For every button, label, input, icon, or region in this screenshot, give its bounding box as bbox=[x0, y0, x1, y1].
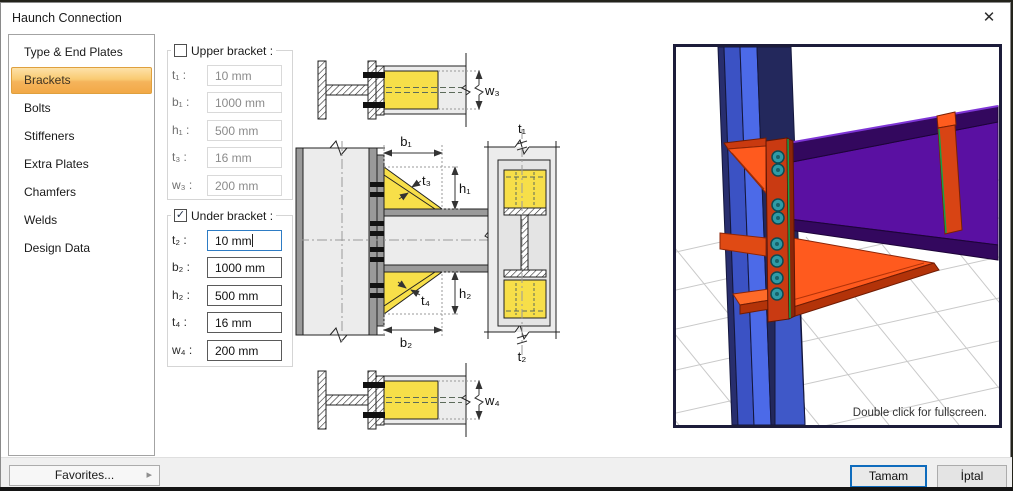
under-bracket-group: ✓ Under bracket : t₂ : b₂ : h₂ : t₄ : w₄… bbox=[167, 215, 293, 367]
screen: { "window": { "title": "Haunch Connectio… bbox=[0, 0, 1013, 491]
field-row-w4: w₄ : bbox=[168, 340, 292, 361]
field-row-t2: t₂ : bbox=[168, 230, 292, 251]
field-row-t4: t₄ : bbox=[168, 312, 292, 333]
field-row-b1: b₁ : bbox=[168, 92, 292, 113]
w3-label: w₃ : bbox=[172, 178, 206, 192]
t2-input[interactable] bbox=[207, 230, 282, 251]
t4-input[interactable] bbox=[207, 312, 282, 333]
haunch-connection-dialog: Haunch Connection ✕ Type & End Plates Br… bbox=[0, 2, 1011, 487]
titlebar: Haunch Connection ✕ bbox=[1, 3, 1010, 33]
diagram-top-view: w₃ bbox=[318, 53, 500, 127]
cancel-button[interactable]: İptal bbox=[937, 465, 1007, 488]
sidebar-item-stiffeners[interactable]: Stiffeners bbox=[11, 123, 152, 150]
b1-label: b₁ : bbox=[172, 95, 206, 109]
ok-button[interactable]: Tamam bbox=[850, 465, 927, 488]
t1-input[interactable] bbox=[207, 65, 282, 86]
favorites-button[interactable]: Favorites... ▸ bbox=[9, 465, 160, 486]
text-caret bbox=[252, 234, 253, 247]
label-h2: h₂ bbox=[459, 286, 471, 301]
sidebar-item-welds[interactable]: Welds bbox=[11, 207, 152, 234]
label-w4: w₄ bbox=[484, 393, 500, 408]
b2-input[interactable] bbox=[207, 257, 282, 278]
t3-label: t₃ : bbox=[172, 150, 206, 164]
b1-input[interactable] bbox=[207, 92, 282, 113]
sidebar-item-extra-plates[interactable]: Extra Plates bbox=[11, 151, 152, 178]
upper-bracket-checkbox[interactable] bbox=[174, 44, 187, 57]
h2-input[interactable] bbox=[207, 285, 282, 306]
field-row-t3: t₃ : bbox=[168, 147, 292, 168]
w4-input[interactable] bbox=[207, 340, 282, 361]
t1-label: t₁ : bbox=[172, 68, 206, 82]
diagram-bottom-view: w₄ bbox=[318, 363, 500, 437]
under-bracket-title: Under bracket : bbox=[191, 209, 273, 223]
label-b2: b₂ bbox=[400, 335, 412, 350]
t4-label: t₄ : bbox=[172, 315, 206, 329]
label-t1: t₁ bbox=[518, 121, 527, 136]
screen-edge bbox=[0, 487, 1013, 491]
dialog-title: Haunch Connection bbox=[12, 11, 122, 25]
t3-input[interactable] bbox=[207, 147, 282, 168]
upper-bracket-group: Upper bracket : t₁ : b₁ : h₁ : t₃ : w₃ : bbox=[167, 50, 293, 200]
beam-3d bbox=[788, 106, 998, 260]
favorites-arrow-icon: ▸ bbox=[146, 466, 152, 485]
w3-input[interactable] bbox=[207, 175, 282, 196]
close-icon[interactable]: ✕ bbox=[977, 7, 1001, 29]
h2-label: h₂ : bbox=[172, 288, 206, 302]
fullscreen-hint: Double click for fullscreen. bbox=[853, 407, 987, 419]
sidebar-item-design-data[interactable]: Design Data bbox=[11, 235, 152, 262]
under-bracket-header: ✓ Under bracket : bbox=[171, 207, 276, 224]
sidebar-item-bolts[interactable]: Bolts bbox=[11, 95, 152, 122]
sidebar: Type & End Plates Brackets Bolts Stiffen… bbox=[8, 34, 155, 456]
sidebar-item-brackets[interactable]: Brackets bbox=[11, 67, 152, 94]
field-row-b2: b₂ : bbox=[168, 257, 292, 278]
label-t3: t₃ bbox=[422, 173, 431, 188]
field-row-h1: h₁ : bbox=[168, 120, 292, 141]
3d-preview-viewport[interactable]: Double click for fullscreen. bbox=[673, 44, 1002, 428]
label-t4: t₄ bbox=[421, 293, 430, 308]
bracket-dimension-diagram: w₃ bbox=[294, 41, 576, 441]
favorites-label: Favorites... bbox=[55, 468, 114, 482]
label-w3: w₃ bbox=[484, 83, 500, 98]
label-h1: h₁ bbox=[459, 181, 471, 196]
field-row-h2: h₂ : bbox=[168, 285, 292, 306]
field-row-t1: t₁ : bbox=[168, 65, 292, 86]
b2-label: b₂ : bbox=[172, 260, 206, 274]
upper-bracket-header: Upper bracket : bbox=[171, 42, 276, 59]
sidebar-item-type-end-plates[interactable]: Type & End Plates bbox=[11, 39, 152, 66]
under-bracket-checkbox[interactable]: ✓ bbox=[174, 209, 187, 222]
diagram-cross-section: t₁ t₂ bbox=[484, 121, 560, 364]
h1-input[interactable] bbox=[207, 120, 282, 141]
label-t2: t₂ bbox=[518, 349, 527, 364]
t2-label: t₂ : bbox=[172, 233, 206, 247]
w4-label: w₄ : bbox=[172, 343, 206, 357]
field-row-w3: w₃ : bbox=[168, 175, 292, 196]
label-b1: b₁ bbox=[400, 134, 412, 149]
h1-label: h₁ : bbox=[172, 123, 206, 137]
sidebar-item-chamfers[interactable]: Chamfers bbox=[11, 179, 152, 206]
upper-bracket-title: Upper bracket : bbox=[191, 44, 273, 58]
diagram-elevation-view: b₁ t₃ h₁ t₄ h₂ b₂ bbox=[296, 134, 499, 350]
3d-connection-render bbox=[676, 47, 999, 425]
